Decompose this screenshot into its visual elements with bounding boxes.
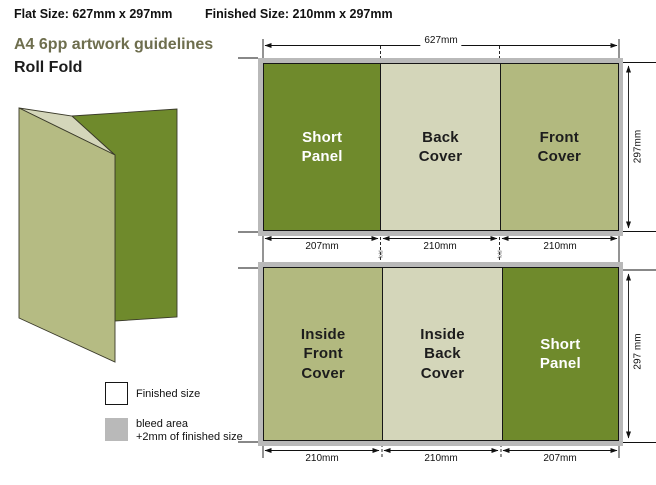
panel-inside-back-cover: Inside Back Cover [382,268,501,440]
dim-total-width: 627mm [420,34,461,47]
page-subtitle: Roll Fold [14,59,82,77]
panel-front-cover: Front Cover [500,64,618,230]
bleed-area-swatch [105,418,128,441]
panel-short-panel-inside: Short Panel [502,268,618,440]
fold-marker: fold [499,250,504,258]
dim-outside-panel-1: 207mm [305,241,338,252]
dim-inside-panel-1: 210mm [305,453,338,464]
outside-sheet-bleed: Short Panel Back Cover Front Cover [258,58,623,236]
panel-back-cover: Back Cover [380,64,499,230]
panel-label: Inside Back Cover [420,325,465,384]
dim-outside-panel-3: 210mm [543,241,576,252]
flat-size-label: Flat Size: 627mm x 297mm [14,7,172,21]
dim-outside-height: 297mm [633,125,644,169]
panel-short-panel-outside: Short Panel [264,64,380,230]
finished-size-label: Finished Size: 210mm x 297mm [205,7,393,21]
outside-sheet-panels: Short Panel Back Cover Front Cover [263,63,619,231]
dim-outside-panel-2: 210mm [423,241,456,252]
finished-size-legend-label: Finished size [136,388,200,401]
artwork-guideline-page: Flat Size: 627mm x 297mm Finished Size: … [0,0,656,485]
bleed-legend-line2: +2mm of finished size [136,431,243,444]
panel-label: Front Cover [538,128,582,167]
inside-sheet-panels: Inside Front Cover Inside Back Cover Sho… [263,267,619,441]
dim-inside-height: 297 mm [633,330,644,374]
rollfold-illustration [14,100,199,375]
bleed-legend-line1: bleed area [136,418,188,431]
panel-label: Inside Front Cover [301,325,346,384]
panel-label: Short Panel [302,128,343,167]
panel-label: Back Cover [419,128,463,167]
dim-inside-panel-2: 210mm [424,453,457,464]
inside-sheet-bleed: Inside Front Cover Inside Back Cover Sho… [258,262,623,446]
page-title: A4 6pp artwork guidelines [14,36,213,54]
fold-marker: fold [380,250,385,258]
dim-inside-panel-3: 207mm [543,453,576,464]
panel-label: Short Panel [540,335,581,374]
finished-size-swatch [105,382,128,405]
panel-inside-front-cover: Inside Front Cover [264,268,382,440]
